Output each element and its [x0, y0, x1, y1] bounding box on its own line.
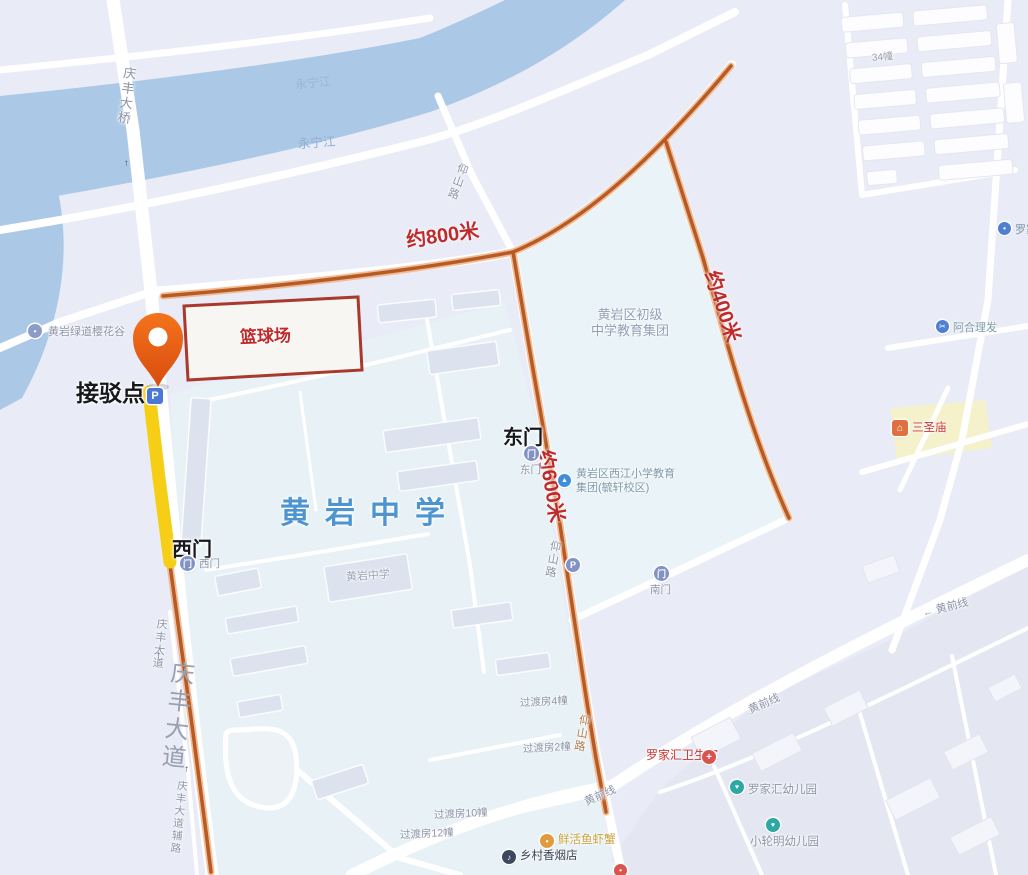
health-station-icon[interactable]: + [702, 750, 716, 764]
kindergarten2-label[interactable]: 小轮明幼儿园 [750, 836, 819, 850]
east-gate-label: 东门 [503, 426, 543, 450]
river-label-2: 永宁江 [298, 135, 336, 153]
fish-shop-label[interactable]: 鲜活鱼虾蟹 [558, 834, 616, 848]
temple-label[interactable]: 三圣庙 [912, 422, 947, 436]
block34-label: 34幢 [872, 51, 894, 65]
barber-label[interactable]: 阿合理发 [953, 322, 997, 335]
kindergarten1-label[interactable]: 罗家汇幼儿园 [748, 784, 817, 798]
barber-icon[interactable]: ✂ [936, 320, 949, 333]
shuttle-parking-badge[interactable]: P [147, 388, 163, 404]
xijiang-school-icon[interactable]: ▲ [558, 474, 571, 487]
parking-icon[interactable]: P [566, 558, 580, 572]
greenway-icon[interactable]: • [28, 324, 42, 338]
west-gate-small-label[interactable]: 西门 [199, 558, 220, 571]
kindergarten2-icon[interactable]: ♥ [766, 818, 780, 832]
tobacco-shop-icon[interactable]: ♪ [502, 850, 516, 864]
fish-shop-icon[interactable]: • [540, 834, 554, 848]
cutoff-poi-label: 罗家 [1015, 224, 1028, 237]
xijiang-school-line1: 黄岩区西江小学教育 [576, 468, 675, 480]
east-gate-small-label[interactable]: 东门 [520, 464, 541, 477]
housing-label-2: 过渡房2幢 [523, 741, 571, 756]
kindergarten1-icon[interactable]: ♥ [730, 780, 744, 794]
left-arrow-icon: ← [921, 605, 935, 619]
school-area-label[interactable]: 黄岩中学 [280, 496, 460, 532]
shuttle-point-label: 接驳点 [76, 380, 145, 408]
junior-school-line2: 中学教育集团 [591, 323, 669, 338]
map-canvas[interactable]: 庆丰大桥 ↑ 永宁江 永宁江 仰山路 仰山路 仰山路 庆丰大道 ↑ 庆丰大道 庆… [0, 0, 1028, 875]
south-gate-small-label[interactable]: 南门 [650, 584, 671, 597]
tobacco-shop-label[interactable]: 乡村香烟店 [520, 850, 578, 864]
temple-icon[interactable]: ⌂ [892, 420, 908, 436]
bottom-cutoff-poi-icon[interactable]: • [614, 864, 627, 875]
housing-label-4: 过渡房4幢 [520, 695, 568, 710]
south-gate-icon[interactable]: 门 [654, 566, 669, 581]
cutoff-poi-icon[interactable]: • [998, 222, 1011, 235]
junior-school-line1: 黄岩区初级 [597, 307, 662, 322]
greenway-label[interactable]: 黄岩绿道樱花谷 [48, 326, 125, 339]
xijiang-school-label[interactable]: 黄岩区西江小学教育 集团(毓轩校区) [576, 468, 675, 496]
xijiang-school-line2: 集团(毓轩校区) [576, 482, 649, 494]
west-gate-icon[interactable]: 门 [180, 556, 195, 571]
loop-road [225, 729, 296, 808]
junior-school-label[interactable]: 黄岩区初级 中学教育集团 [580, 307, 680, 340]
east-gate-icon[interactable]: 门 [524, 446, 539, 461]
basketball-court-label: 篮球场 [240, 326, 292, 348]
